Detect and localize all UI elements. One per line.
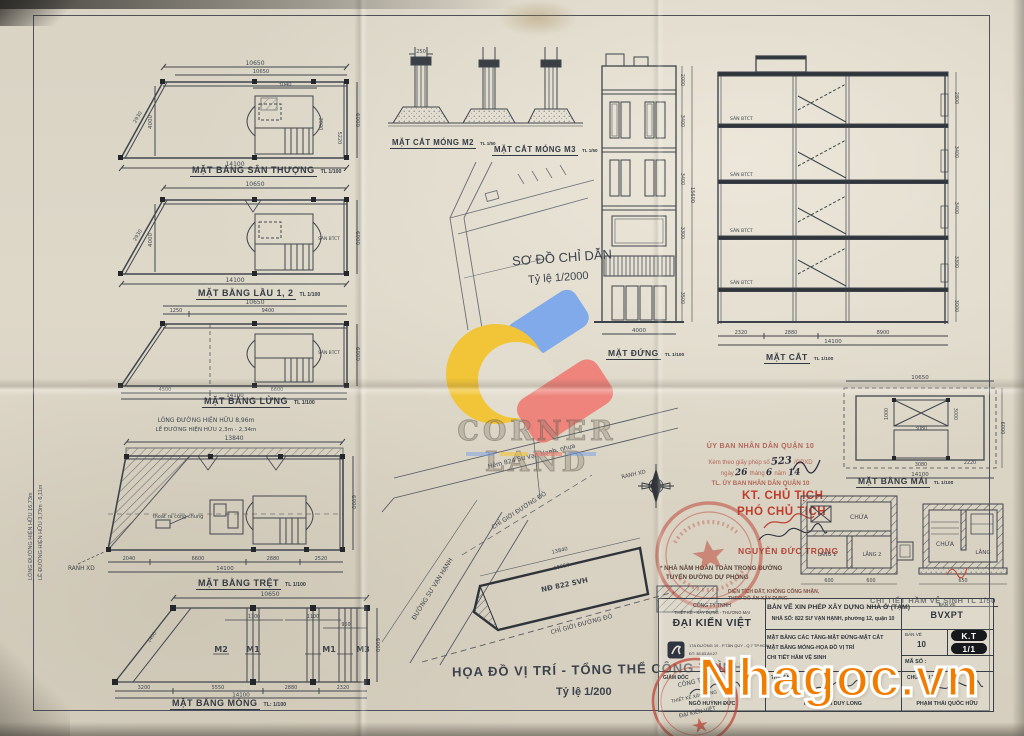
caption-scale: TL 1/100 xyxy=(285,582,306,588)
stamp-date-line: ngày 26 tháng 6 năm 14 xyxy=(668,468,853,478)
dim-label: 15600 xyxy=(689,187,695,203)
tagline-dash xyxy=(466,452,494,456)
caption-scale: TL 1/100 xyxy=(814,357,834,362)
caption-title: MẶT CẮT MÓNG M2 xyxy=(390,138,476,149)
drain-note: thoát ra cống chung xyxy=(153,513,204,520)
slab-label: SÀN BTCT xyxy=(730,171,753,178)
street-note-vertical: LỀ ĐƯỜNG HIỆN HỮU 3,73m - 6,11m xyxy=(38,485,44,580)
stamp-permit-line: Kèm theo giấy phép số 523 /GPXD xyxy=(668,456,853,467)
septic-room-label: LẮNG 2 xyxy=(863,550,882,558)
dim-label: 10650 xyxy=(253,69,270,75)
dim-label: 1100 xyxy=(248,614,260,620)
dim-label: 10650 xyxy=(245,181,264,188)
caption-title: MẶT CẮT MÓNG M3 xyxy=(492,145,578,156)
dim-label: 2520 xyxy=(315,556,328,562)
plan-lau12-caption: MẶT BẰNG LẦU 1, 2TL 1/100 xyxy=(196,288,320,298)
corner-land-watermark-text: CORNER LAND xyxy=(422,416,652,478)
dim-label: 10650 xyxy=(553,562,570,572)
dim-label: 1100 xyxy=(307,614,319,620)
septic-room-label: CHỨA xyxy=(936,541,955,548)
room-label: SÀN BTCT xyxy=(318,235,340,242)
dim-label: 6000 xyxy=(374,638,380,652)
nhagoc-watermark-text: Nhagoc.vn xyxy=(698,645,979,709)
dim-label: 250 xyxy=(416,49,426,55)
dim-label: 10650 xyxy=(245,60,264,67)
pen-checkmark xyxy=(790,450,824,480)
dim-label: 1250 xyxy=(170,308,183,314)
red-check-scribble xyxy=(944,560,970,582)
drawing-subtitle: NHÀ SỐ: 822 SƯ VẠN HẠNH, phường 12, quận… xyxy=(767,616,899,622)
dim-label: 3040 xyxy=(278,82,291,88)
drawing-title: BẢN VẼ XIN PHÉP XÂY DỰNG NHÀ Ở (TẠM) xyxy=(767,604,899,611)
dim-label: 950 xyxy=(341,622,350,628)
section-caption: MẶT CẮTTL 1/100 xyxy=(764,352,833,362)
dim-label: 2320 xyxy=(735,330,748,336)
scan-edge-shadow-bottom xyxy=(0,722,1024,736)
handwritten-day: 26 xyxy=(735,468,748,479)
tagline-dash xyxy=(500,452,528,456)
road-note: LÒNG ĐƯỜNG HIỆN HỮU 8,96m xyxy=(158,416,255,424)
plan-lau12-drawing: 10650 SÀN BTCT 6000 4000 2930 14100 xyxy=(105,180,360,292)
dim-label: 3500 xyxy=(679,292,685,304)
dim-label: 14100 xyxy=(216,566,234,572)
dim-label: 2880 xyxy=(285,685,298,691)
plan-mong-caption: MẶT BẰNG MÓNGTL: 1/100 xyxy=(170,698,286,708)
site-plan-scale: Tỷ lệ 1/200 xyxy=(556,686,612,698)
tagline-dash xyxy=(534,452,562,456)
stamp-permit-pre: Kèm theo giấy phép số xyxy=(708,460,769,466)
plan-san-thuong-drawing: 10650 10650 3040 3000 5220 6000 4000 293… xyxy=(105,58,360,176)
caption-title: MẶT BẰNG SÂN THƯỢNG xyxy=(190,165,317,177)
caption-title: MẶT BẰNG LỬNG xyxy=(202,396,290,408)
lot-label: NĐ 822 SVH xyxy=(541,576,589,594)
caption-scale: TL 1/100 xyxy=(294,400,315,406)
dim-label: 3400 xyxy=(679,115,685,127)
company-type: CÔNG TY TNHH xyxy=(659,603,765,609)
horizontal-fold-crease xyxy=(0,378,1024,396)
dim-label: 3400 xyxy=(953,146,959,158)
dim-label: 8900 xyxy=(877,330,890,336)
septic-detail-drawing: CHỨA LẮNG 1 LẮNG 2 CHỨA LẮNG 600 600 650 xyxy=(795,486,1010,594)
septic-room-label: CHỨA xyxy=(850,514,869,521)
footing-m2-caption: MẶT CẮT MÓNG M2TL 1/50 xyxy=(390,138,495,147)
dim-label: 3400 xyxy=(953,202,959,214)
road-note: LỀ ĐƯỜNG HIỆN HỮU 2,3m - 2,34m xyxy=(155,425,256,433)
dim-label: 4000 xyxy=(632,328,646,334)
sheet-label: BẢN VẼ xyxy=(905,632,922,637)
scan-edge-shadow-right xyxy=(1012,0,1024,736)
dim-label: 5550 xyxy=(212,685,225,691)
company-name: ĐẠI KIẾN VIỆT xyxy=(659,617,765,629)
ranh-xd-label: RANH XD xyxy=(68,566,95,572)
dim-label: 2930 xyxy=(132,110,144,124)
main-road-label: ĐƯỜNG SƯ VẠN HẠNH xyxy=(409,556,455,622)
dim-label: 1400 xyxy=(146,631,158,644)
dim-label: 2320 xyxy=(337,685,350,691)
dim-label: 1000 xyxy=(884,408,890,420)
dim-label: 3000 xyxy=(953,300,959,312)
vertical-fold-crease xyxy=(652,0,664,736)
footing-m3-caption: MẶT CẮT MÓNG M3TL 1/50 xyxy=(492,145,597,154)
slab-label: SÀN BTCT xyxy=(730,279,753,286)
stamp-authority-line: ỦY BAN NHÂN DÂN QUẬN 10 xyxy=(668,443,853,450)
caption-scale: TL 1/100 xyxy=(321,169,342,175)
caption-title: MẶT BẰNG TRỆT xyxy=(196,578,281,590)
dim-label: 14100 xyxy=(225,277,244,284)
street-note-vertical: LÒNG ĐƯỜNG HIỆN HỮU 16,73m xyxy=(28,493,34,580)
ban-ve-label: BẢN VẼ xyxy=(903,602,991,607)
dim-label: 3300 xyxy=(679,227,685,239)
dim-label: 4000 xyxy=(148,115,154,129)
dim-label: 9400 xyxy=(262,308,275,314)
dim-label: 2800 xyxy=(953,92,959,104)
dim-label: 600 xyxy=(824,578,833,584)
dim-label: 3200 xyxy=(138,685,151,691)
footing-label-m2: M2 xyxy=(214,645,228,654)
dim-label: 3000 xyxy=(952,408,958,420)
dim-label: 14100 xyxy=(824,339,842,345)
dim-label: 600 xyxy=(866,578,875,584)
drawing-content-1: MẶT BẰNG CÁC TẦNG-MẶT ĐỨNG-MẶT CẮT xyxy=(767,635,899,641)
caption-scale: TL 1/100 xyxy=(665,353,685,358)
footing-details-drawing: 250 xyxy=(383,45,588,140)
scan-edge-shadow-corner xyxy=(0,0,120,26)
plan-mong-drawing: 10650 1100 1100 950 1400 M2 M1 M1 M3 320… xyxy=(95,590,390,700)
scan-edge-shadow-bottom-left xyxy=(0,640,70,736)
dim-label: 3080 xyxy=(915,462,927,468)
blueprint-sheet: 10650 10650 3040 3000 5220 6000 4000 293… xyxy=(0,0,1024,736)
dim-label: 4000 xyxy=(148,233,154,247)
dim-label: 5220 xyxy=(336,132,342,145)
plan-tret-drawing: LÒNG ĐƯỜNG HIỆN HỮU 8,96m LỀ ĐƯỜNG HIỆN … xyxy=(38,412,363,580)
dim-label: 3400 xyxy=(679,173,685,185)
plan-lung-caption: MẶT BẰNG LỬNGTL 1/100 xyxy=(202,396,315,406)
vertical-fold-crease xyxy=(354,0,368,736)
paper-stain xyxy=(498,0,578,36)
dim-label: 6600 xyxy=(192,556,205,562)
section-drawing: SÀN BTCT SÀN BTCT SÀN BTCT SÀN BTCT 2800… xyxy=(698,50,968,350)
dim-label: 3080 xyxy=(915,426,927,432)
tagline-dash xyxy=(568,452,596,456)
septic-room-label: LẮNG 1 xyxy=(818,550,837,558)
dim-label: 13840 xyxy=(551,546,568,556)
dim-label: 2040 xyxy=(123,556,136,562)
dim-label: 2880 xyxy=(267,556,280,562)
roof-plan-caption: MẶT BẰNG MÁITL 1/100 xyxy=(856,476,953,486)
stamp-date-mid: tháng xyxy=(750,471,765,477)
footing-label-m1: M1 xyxy=(246,645,260,654)
handwritten-month: 6 xyxy=(766,468,773,478)
ban-ve-code: BVXPT xyxy=(903,610,991,620)
dim-label: 2220 xyxy=(964,460,976,466)
red-line-label: CHỈ GIỚI ĐƯỜNG ĐỎ xyxy=(490,489,548,531)
room-label: SÀN BTCT xyxy=(318,349,340,356)
caption-title: MẶT CẮT xyxy=(764,352,810,364)
dim-label: 13840 xyxy=(224,435,243,442)
dim-label: 2880 xyxy=(785,330,798,336)
septic-room-label: LẮNG xyxy=(975,548,990,556)
company-fields: THIẾT KẾ - XÂY DỰNG - THƯƠNG MẠI xyxy=(659,610,765,615)
badge-kt: K.T xyxy=(951,630,987,641)
slab-label: SÀN BTCT xyxy=(730,227,753,234)
caption-scale: TL: 1/100 xyxy=(264,702,287,708)
dim-label: 3300 xyxy=(953,256,959,268)
dim-label: 3000 xyxy=(317,118,323,131)
dim-label: 2000 xyxy=(679,74,685,86)
ubnd-round-seal xyxy=(652,498,767,613)
footing-label-m1: M1 xyxy=(322,645,336,654)
slab-label: SÀN BTCT xyxy=(730,115,753,122)
caption-title: MẶT BẰNG MÓNG xyxy=(170,698,260,710)
plan-san-thuong-caption: MẶT BẰNG SÂN THƯỢNGTL 1/100 xyxy=(190,165,341,175)
dim-label: 10650 xyxy=(245,299,264,306)
plan-tret-caption: MẶT BẰNG TRỆTTL 1/100 xyxy=(196,578,306,588)
dim-label: 6000 xyxy=(999,422,1005,435)
stamp-date-pre: ngày xyxy=(721,471,734,477)
stamp-date-post: năm xyxy=(774,471,786,477)
corner-land-tagline xyxy=(466,452,596,456)
dim-label: 10650 xyxy=(260,591,279,598)
